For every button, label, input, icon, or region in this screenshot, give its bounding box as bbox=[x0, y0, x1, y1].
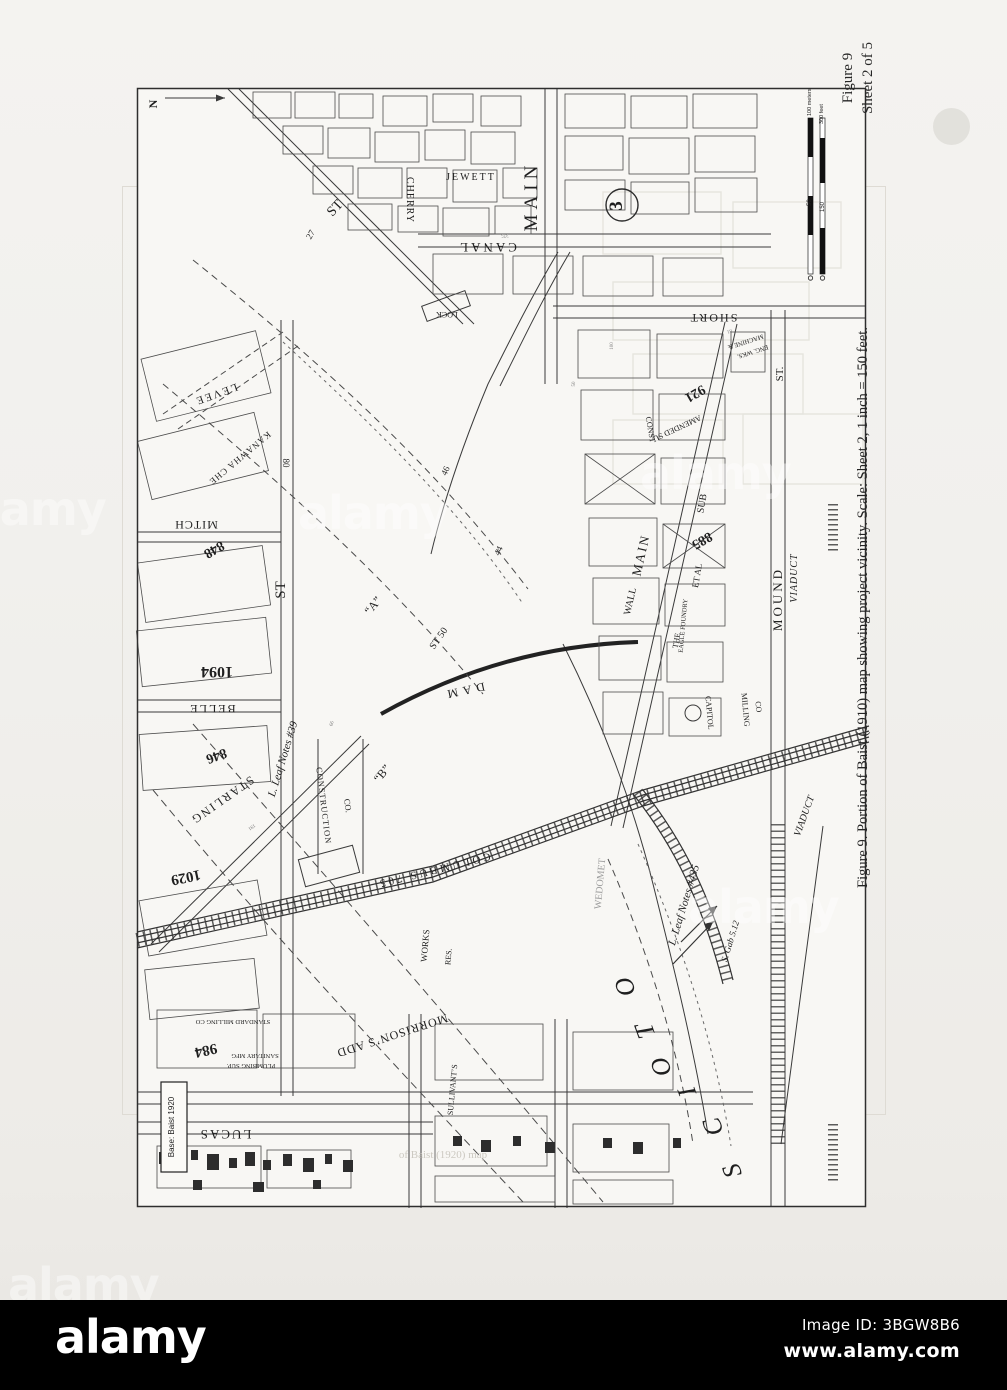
map-label-scale-150: 150 bbox=[820, 201, 826, 212]
map-label-num-80: 80 bbox=[281, 459, 291, 469]
map-label-ghost-caption: of Baist (1920) map bbox=[399, 1149, 488, 1161]
map-label-lot-100: 100 bbox=[610, 342, 615, 350]
map-label-sanitary-mfg: SANITARY MFG bbox=[231, 1052, 279, 1059]
map-label-lot-375: 375 bbox=[501, 232, 509, 237]
map-label-res-label: RES. bbox=[443, 948, 453, 965]
map-label-marker-3: 3 bbox=[606, 201, 627, 211]
map-label-plot-1094: 1094 bbox=[201, 663, 233, 680]
figure-caption: Figure 9. Portion of Baist (1910) map sh… bbox=[855, 368, 875, 888]
map-label-scale-feet: 300 feet bbox=[819, 104, 825, 124]
figure-sheet-label: Figure 9 Sheet 2 of 5 bbox=[838, 3, 878, 153]
map-label-standard-milling: STANDARD MILLING CO bbox=[195, 1018, 270, 1025]
map-label-construction-co: CO. bbox=[342, 798, 354, 813]
alamy-logo: alamy bbox=[55, 1314, 206, 1360]
map-label-plumbing-sup: PLUMBING SUP. bbox=[226, 1062, 275, 1069]
map-label-scale-50: 50 bbox=[807, 199, 813, 206]
scanned-document-page: NSTCHERRYJEWETTMAINCANALLOCK27SHORTST.MO… bbox=[0, 0, 1007, 1390]
map-label-street-mound: MOUND bbox=[770, 567, 785, 631]
map-label-street-st-left: ST bbox=[273, 581, 289, 599]
map-label-street-short: SHORT bbox=[689, 311, 738, 325]
footer-info: Image ID: 3BGW8B6 www.alamy.com bbox=[784, 1316, 961, 1362]
map-label-street-canal: CANAL bbox=[457, 240, 517, 255]
map-label-street-cherry: CHERRY bbox=[404, 177, 415, 223]
map-label-street-belle: BELLE bbox=[188, 702, 235, 716]
baist-map-figure: NSTCHERRYJEWETTMAINCANALLOCK27SHORTST.MO… bbox=[133, 84, 873, 1212]
watermark-circle-icon bbox=[933, 108, 970, 145]
watermark-tile: alamy bbox=[0, 482, 106, 536]
map-label-mound-viaduct: VIADUCT bbox=[789, 553, 800, 603]
map-label-co-label: CO bbox=[754, 701, 764, 713]
map-label-base-note: Base: Baist 1920 bbox=[167, 1096, 176, 1157]
image-id-text: Image ID: 3BGW8B6 bbox=[784, 1316, 961, 1334]
map-label-north-label: N bbox=[146, 99, 160, 108]
map-label-street-lucas: LUCAS bbox=[199, 1127, 252, 1142]
map-label-scale-meters: 100 meters bbox=[807, 88, 813, 116]
map-label-lot-50: 50 bbox=[572, 381, 577, 387]
map-label-street-mitch: MITCH bbox=[174, 518, 218, 532]
alamy-url-text: www.alamy.com bbox=[784, 1340, 961, 1362]
map-label-street-st-right: ST. bbox=[774, 366, 786, 381]
figure-number: Figure 9 bbox=[838, 3, 858, 153]
sheet-number: Sheet 2 of 5 bbox=[858, 3, 878, 153]
baist-map: NSTCHERRYJEWETTMAINCANALLOCK27SHORTST.MO… bbox=[133, 84, 873, 1212]
map-label-street-main-north: MAIN bbox=[521, 161, 542, 232]
map-label-street-jewett: JEWETT bbox=[446, 172, 496, 183]
alamy-footer-bar: alamy Image ID: 3BGW8B6 www.alamy.com bbox=[0, 1300, 1007, 1390]
map-label-lock-label: LOCK bbox=[436, 310, 458, 319]
